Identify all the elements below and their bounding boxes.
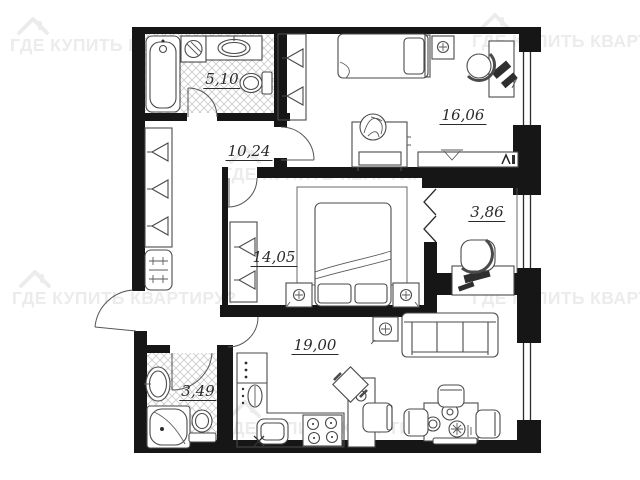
- double-bed: [315, 203, 391, 306]
- accordion-door-balcony: [424, 189, 436, 242]
- chair: [363, 403, 392, 432]
- entrance-door: [95, 290, 136, 331]
- dining-chair: [404, 409, 428, 436]
- sofa: [402, 313, 498, 357]
- door-kitchen: [228, 317, 258, 347]
- window-bedroom-right: [524, 52, 531, 125]
- bathtub: [146, 36, 180, 112]
- floor-plan: [0, 0, 640, 480]
- door-bedroom-right: [281, 127, 314, 160]
- toilet: [240, 72, 272, 94]
- room-label-hallway: 10,24: [226, 143, 273, 161]
- stove: [303, 415, 342, 446]
- nightstand: [393, 283, 419, 307]
- nightstand: [432, 36, 454, 59]
- window-kitchen: [524, 343, 531, 420]
- shower: [147, 406, 190, 448]
- nightstand: [286, 283, 312, 307]
- room-label-kitchen-living: 19,00: [292, 337, 339, 355]
- room-label-bedroom-right: 16,06: [440, 107, 487, 125]
- room-label-bathroom-top: 5,10: [203, 71, 240, 89]
- shoe-cabinet: [145, 250, 172, 290]
- plant: [360, 114, 386, 140]
- windows: [517, 52, 531, 420]
- kitchen-sink: [254, 419, 288, 446]
- dining-bench: [433, 438, 477, 444]
- vanity-sink: [206, 36, 262, 60]
- floor-plan-canvas: ГДЕ КУПИТЬ КВАРТИРУ? ГДЕ КУПИТЬ КВАРТИРУ…: [0, 0, 640, 480]
- room-label-balcony: 3,86: [468, 204, 505, 222]
- dining-chair: [476, 410, 500, 438]
- room-label-bathroom-bottom: 3,49: [179, 383, 216, 401]
- door-bedroom-middle: [228, 178, 257, 207]
- side-table: [371, 317, 398, 344]
- wardrobe-hallway: [145, 128, 172, 247]
- tv-stand: [418, 150, 518, 167]
- balcony-chair: [461, 240, 495, 272]
- single-bed: [338, 34, 430, 78]
- washing-machine: [181, 36, 206, 62]
- boiler: [242, 385, 262, 407]
- room-label-bedroom-middle: 14,05: [251, 249, 298, 267]
- dining-chair: [438, 385, 464, 407]
- window-balcony: [524, 195, 531, 268]
